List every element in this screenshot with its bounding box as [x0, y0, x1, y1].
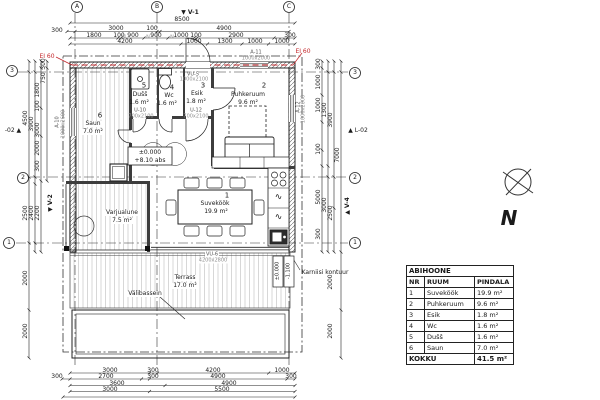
room-name-valibassein: Välibassein	[127, 291, 163, 297]
n-mark: N	[146, 35, 150, 40]
section-marker-v2: ▼ V-2	[48, 194, 54, 212]
table-total-value: 41.5 m²	[475, 354, 514, 365]
door-size-vu5: 1000x2100	[180, 78, 208, 83]
dim: 1000	[274, 39, 289, 45]
puhkeruum-furniture	[225, 106, 274, 162]
table-total-label: KOKKU	[407, 354, 475, 365]
section-marker-v4: ▲ V-4	[345, 197, 351, 215]
grid-row-2-right: 2	[353, 175, 357, 181]
varjualune-floor	[66, 184, 147, 250]
col-header-pindala: PINDALA	[475, 277, 514, 288]
elevation-main: ±0.000	[139, 150, 161, 156]
room-nr-esik: 3	[201, 83, 205, 90]
table-row: 1 Suveköök 19.9 m²	[407, 288, 514, 299]
dim: 2000	[328, 274, 334, 289]
cell-room: Esik	[425, 310, 475, 321]
dim: 3900	[328, 112, 334, 127]
dim: 2200	[35, 205, 41, 220]
grid-row-3-right: 3	[353, 70, 357, 76]
cooktop-burner	[272, 172, 278, 178]
dim: 300	[51, 28, 62, 34]
dim: 3000	[102, 387, 117, 393]
grid-row-1-right: 1	[353, 240, 357, 246]
dim: 300	[41, 58, 47, 69]
cell-area: 1.8 m²	[475, 310, 514, 321]
room-name-esik: Esik	[191, 91, 203, 97]
room-nr-saun: 6	[97, 113, 103, 120]
cell-room: Saun	[425, 343, 475, 354]
glasswall-size-vu6: 4200x2800	[198, 259, 228, 264]
grid-col-b: B	[155, 4, 159, 10]
dim: 2000	[35, 140, 41, 155]
grid-col-a: A	[75, 4, 79, 10]
n-mark: N	[170, 35, 174, 40]
door-size-u10: 700x2100	[128, 114, 153, 119]
fire-rating-label-right: EI 60	[295, 49, 310, 55]
dim: 5500	[214, 387, 229, 393]
room-name-puhkeruum: Puhkeruum	[231, 92, 265, 98]
dim: 100	[35, 100, 41, 111]
grid-row-2-left: 2	[21, 175, 25, 181]
cell-area: 1.6 m²	[475, 321, 514, 332]
room-name-saun: Saun	[84, 121, 101, 127]
cell-room: Dušš	[425, 332, 475, 343]
cell-area: 7.0 m²	[475, 343, 514, 354]
dining-table	[178, 190, 252, 224]
room-name-terrass: Terrass	[173, 275, 196, 281]
dim: 1300	[217, 39, 232, 45]
elevation-abs: +8.10 abs	[135, 158, 166, 164]
dim: 1000	[247, 39, 262, 45]
dim: 8500	[174, 17, 189, 23]
dim: 2000	[23, 270, 29, 285]
elevation-pool: -1.100	[287, 263, 292, 279]
dim: 300	[51, 374, 62, 380]
table-row: 6 Saun 7.0 m²	[407, 343, 514, 354]
cell-area: 19.9 m²	[475, 288, 514, 299]
col-header-nr: NR	[407, 277, 425, 288]
grid-col-c: C	[287, 4, 291, 10]
cell-nr: 4	[407, 321, 425, 332]
room-area-dushsh: 1.6 m²	[129, 100, 149, 106]
floor-plan-drawing: ▼ V-1 ▼ V-2 ▲ V-4 -02 ▲ ▲ L-02 N EI 60 E…	[0, 0, 600, 400]
cornice-note: Karniisi kontuur	[302, 270, 349, 276]
cell-nr: 2	[407, 299, 425, 310]
room-area-esik: 1.8 m²	[186, 99, 206, 105]
room-nr-wc: 4	[170, 85, 174, 92]
room-name-wc: Wc	[164, 93, 173, 99]
room-name-varjualune: Varjualune	[105, 210, 139, 216]
dim: 750	[41, 72, 47, 83]
window-size-a11: 1000x2000	[242, 56, 270, 61]
room-nr-suvekook: 1	[225, 193, 229, 200]
dim: 100	[316, 143, 322, 154]
dim: 1800	[86, 33, 101, 39]
north-symbol	[503, 169, 533, 195]
window-size-a12: 1000x2600	[302, 95, 307, 123]
chair	[184, 178, 199, 188]
dim: 300	[147, 374, 158, 380]
level-marker-left: -02 ▲	[5, 128, 21, 134]
room-area-puhkeruum: 9.6 m²	[238, 100, 258, 106]
room-area-suvekook: 19.9 m²	[204, 209, 228, 215]
room-name-suvekook: Suveköök	[201, 201, 230, 207]
cell-room: Puhkeruum	[425, 299, 475, 310]
north-letter: N	[501, 208, 518, 228]
dim: 2000	[23, 323, 29, 338]
dim: 1000	[316, 74, 322, 89]
dim: 7000	[335, 147, 341, 162]
cell-nr: 5	[407, 332, 425, 343]
dim: 3000	[35, 122, 41, 137]
window-size-a10: 1000x2600	[62, 110, 67, 138]
table-row: 2 Puhkeruum 9.6 m²	[407, 299, 514, 310]
toilet-tank	[159, 69, 172, 76]
room-area-saun: 7.0 m²	[82, 129, 104, 135]
room-name-dushsh: Dušš	[133, 92, 148, 98]
cell-nr: 6	[407, 343, 425, 354]
grid-row-1-left: 1	[7, 240, 11, 246]
elevation-terrace: ±0.000	[276, 262, 281, 281]
room-nr-puhkeruum: 2	[262, 83, 266, 90]
appliance-wave-icon: ∿	[275, 194, 283, 203]
table-title: ABIHOONE	[407, 266, 514, 277]
counter-top	[212, 157, 289, 168]
cell-room: Suveköök	[425, 288, 475, 299]
table-row: 3 Esik 1.8 m²	[407, 310, 514, 321]
cell-nr: 3	[407, 310, 425, 321]
room-schedule-table: ABIHOONE NR RUUM PINDALA 1 Suveköök 19.9…	[406, 265, 514, 365]
dim: 300	[316, 228, 322, 239]
table-row: 4 Wc 1.6 m²	[407, 321, 514, 332]
room-area-wc: 1.6 m²	[157, 101, 177, 107]
level-marker-right: ▲ L-02	[348, 128, 368, 134]
dim: 2500	[328, 205, 334, 220]
room-area-varjualune: 7.5 m²	[111, 218, 133, 224]
cell-room: Wc	[425, 321, 475, 332]
door-size-u12: 700x2100	[183, 114, 208, 119]
appliance-wave-icon: ∿	[275, 214, 283, 223]
dim: 900	[150, 33, 161, 39]
grid-row-3-left: 3	[10, 68, 14, 74]
dim: 1000	[186, 39, 201, 45]
cell-area: 9.6 m²	[475, 299, 514, 310]
cell-nr: 1	[407, 288, 425, 299]
dim: 2000	[328, 323, 334, 338]
table-row: 5 Dušš 1.6 m²	[407, 332, 514, 343]
room-area-terrass: 17.0 m²	[172, 283, 198, 289]
room-nr-dushsh: 5	[142, 83, 146, 90]
dim: 300	[35, 160, 41, 171]
cell-area: 1.6 m²	[475, 332, 514, 343]
dim: 300	[285, 374, 296, 380]
dim: 300	[316, 58, 322, 69]
dim: 1800	[35, 82, 41, 97]
col-header-ruum: RUUM	[425, 277, 475, 288]
dim: 4200	[117, 39, 132, 45]
